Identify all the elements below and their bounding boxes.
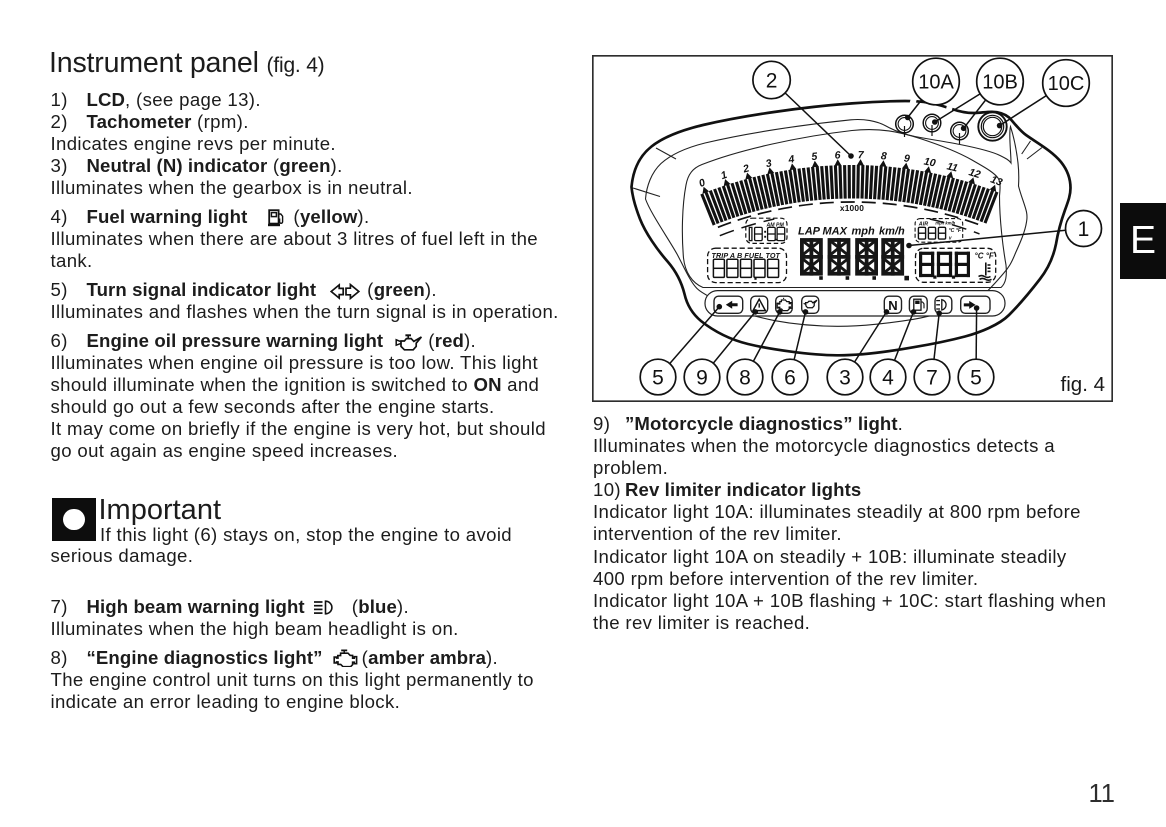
svg-text:1: 1 <box>1078 218 1090 241</box>
svg-text:°C °F: °C °F <box>949 228 962 234</box>
svg-text:7: 7 <box>926 367 938 390</box>
svg-text:5: 5 <box>652 367 664 390</box>
svg-text:x1000: x1000 <box>840 203 864 213</box>
svg-text:fig. 4: fig. 4 <box>1061 373 1105 396</box>
svg-text:8: 8 <box>880 150 887 162</box>
svg-text:10A: 10A <box>918 72 954 94</box>
svg-text:9: 9 <box>696 367 708 390</box>
svg-text:6: 6 <box>784 367 796 390</box>
svg-text:4: 4 <box>882 367 894 390</box>
svg-text:5: 5 <box>970 367 982 390</box>
svg-text:°C °F: °C °F <box>975 252 995 261</box>
svg-text:3: 3 <box>839 367 851 390</box>
svg-text:mph: mph <box>852 226 876 238</box>
svg-text:MAX: MAX <box>823 226 848 238</box>
svg-text:AIR: AIR <box>918 221 928 227</box>
svg-text:8: 8 <box>739 367 751 390</box>
svg-text:N: N <box>888 298 897 313</box>
svg-text:10B: 10B <box>982 72 1018 94</box>
svg-text:10C: 10C <box>1048 73 1085 95</box>
svg-text:LAP: LAP <box>798 226 821 238</box>
svg-text:2: 2 <box>766 70 778 93</box>
svg-text:mph km/h: mph km/h <box>935 221 955 226</box>
svg-text:10: 10 <box>923 156 937 170</box>
svg-text:km/h: km/h <box>879 226 905 238</box>
